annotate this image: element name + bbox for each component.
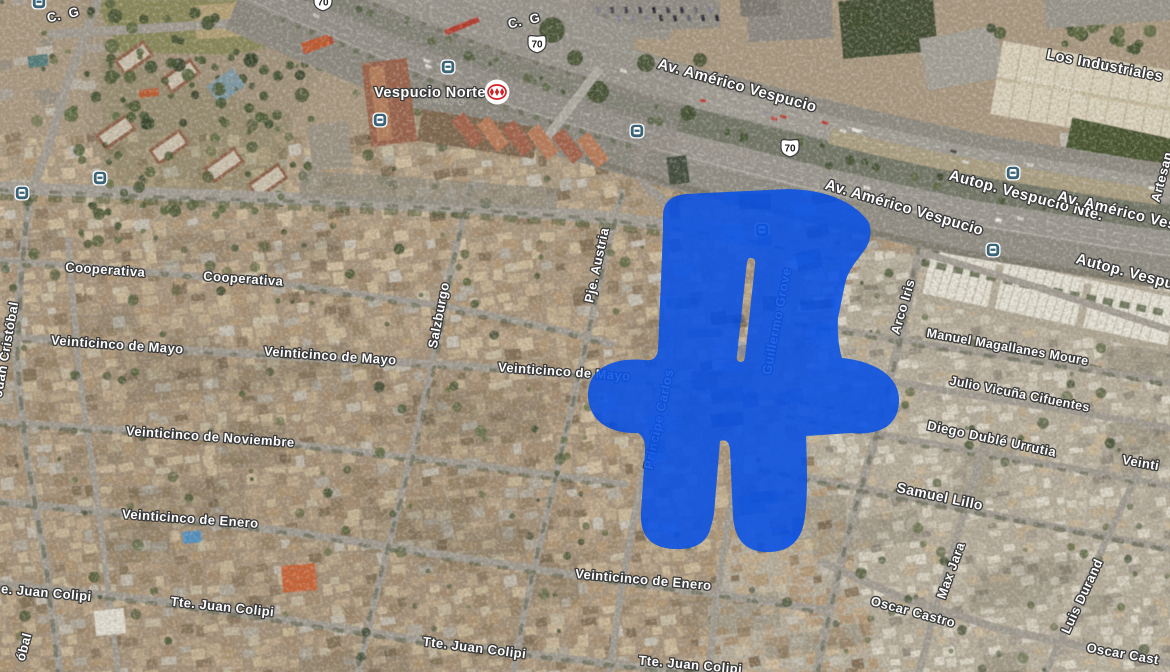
svg-text:70: 70 [784, 144, 796, 155]
svg-text:Vespucio Norte: Vespucio Norte [374, 85, 486, 101]
svg-text:70: 70 [317, 0, 329, 9]
svg-text:70: 70 [531, 40, 543, 51]
